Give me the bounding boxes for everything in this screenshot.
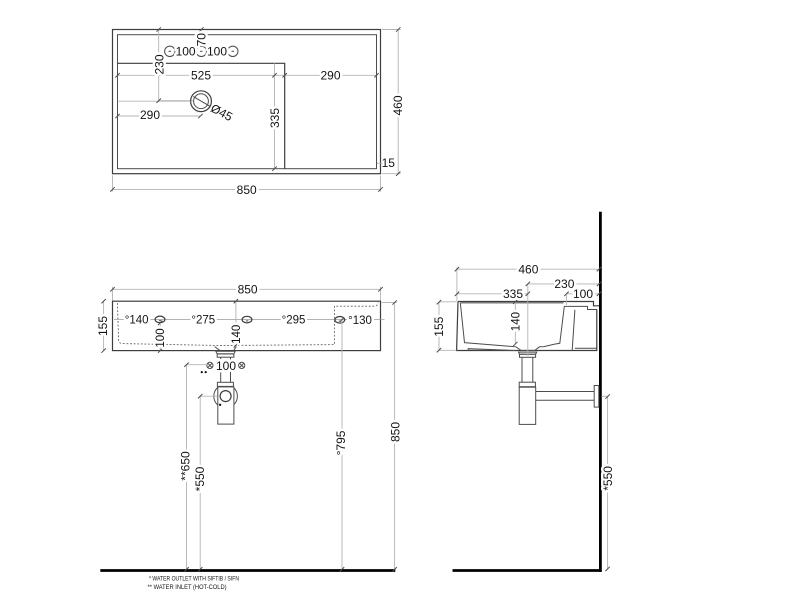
svg-text:525: 525 [191, 69, 211, 83]
svg-text:*550: *550 [601, 466, 615, 491]
svg-text:230: 230 [554, 277, 574, 291]
svg-text:°140: °140 [125, 314, 149, 326]
svg-text:155: 155 [432, 316, 446, 336]
svg-text:°275: °275 [191, 315, 215, 327]
svg-text:290: 290 [320, 69, 340, 83]
svg-text:460: 460 [391, 95, 405, 115]
svg-text:100: 100 [216, 359, 236, 373]
svg-text:100: 100 [155, 328, 167, 347]
svg-text:* WATER OUTLET WITH SIFTIB /: * WATER OUTLET WITH SIFTIB / SIFN [149, 576, 239, 583]
svg-text:100: 100 [573, 287, 593, 301]
svg-text:155: 155 [96, 316, 110, 336]
svg-text:**650: **650 [179, 451, 193, 481]
svg-text:335: 335 [268, 108, 282, 128]
svg-text:°130: °130 [348, 315, 372, 327]
svg-text:290: 290 [140, 108, 160, 122]
svg-text:140: 140 [231, 325, 243, 344]
svg-text:100: 100 [207, 45, 227, 59]
svg-text:460: 460 [518, 263, 538, 277]
svg-text:850: 850 [237, 183, 257, 197]
svg-text:100: 100 [176, 45, 196, 59]
svg-text:*550: *550 [193, 466, 207, 491]
svg-text:** WATER INLET (HOT-COLD): ** WATER INLET (HOT-COLD) [148, 584, 227, 591]
svg-text:230: 230 [152, 54, 166, 74]
svg-text:15: 15 [382, 156, 396, 170]
svg-text:70: 70 [194, 33, 208, 47]
svg-text:850: 850 [388, 422, 402, 442]
svg-text:°295: °295 [282, 314, 306, 326]
svg-text:335: 335 [503, 287, 523, 301]
svg-text:140: 140 [510, 312, 522, 331]
svg-text:850: 850 [238, 283, 258, 297]
svg-text:°795: °795 [334, 430, 348, 455]
